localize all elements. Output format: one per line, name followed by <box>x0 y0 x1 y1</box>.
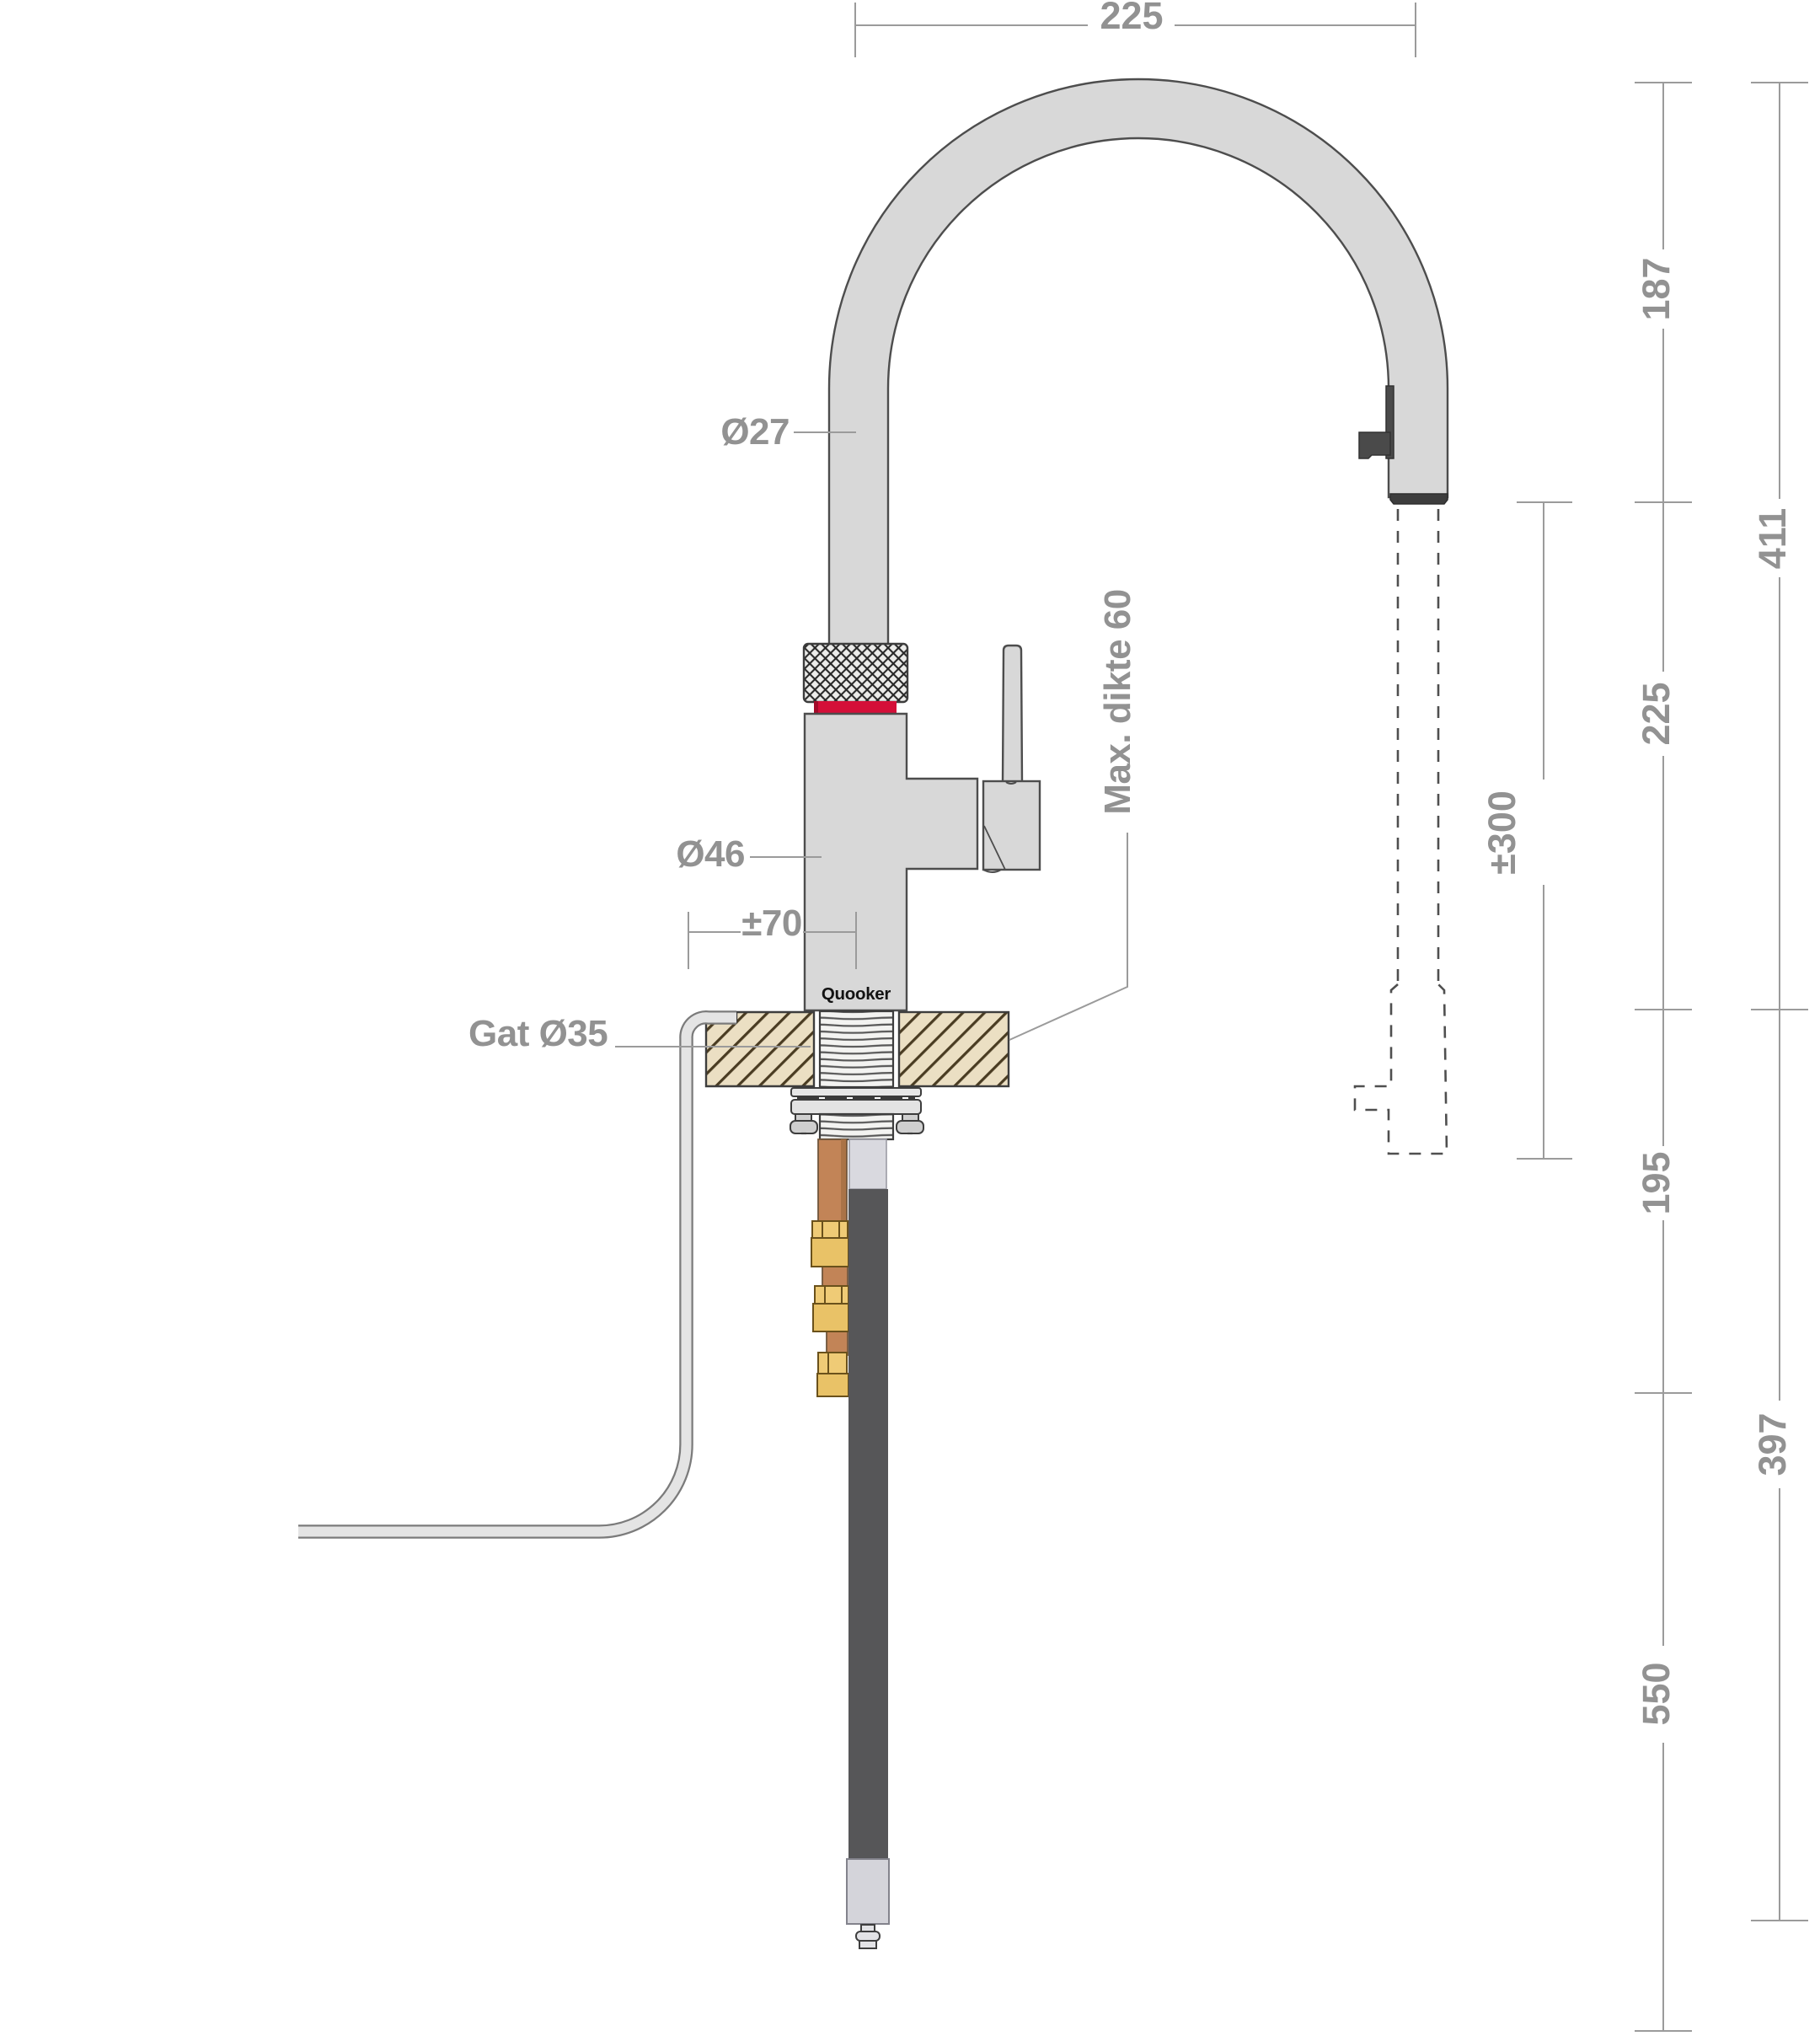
svg-text:Ø27: Ø27 <box>720 411 790 453</box>
svg-text:225: 225 <box>1100 0 1163 37</box>
svg-text:Ø46: Ø46 <box>676 833 745 875</box>
svg-text:±70: ±70 <box>741 903 802 944</box>
svg-text:225: 225 <box>1635 682 1678 745</box>
svg-text:Gat Ø35: Gat Ø35 <box>468 1013 608 1054</box>
svg-text:195: 195 <box>1635 1151 1678 1214</box>
svg-text:Max. dikte 60: Max. dikte 60 <box>1097 589 1138 814</box>
svg-text:411: 411 <box>1751 508 1794 570</box>
svg-text:397: 397 <box>1751 1412 1794 1476</box>
svg-text:550: 550 <box>1635 1662 1678 1725</box>
svg-text:±300: ±300 <box>1480 790 1523 875</box>
svg-text:187: 187 <box>1635 257 1678 320</box>
svg-text:Quooker: Quooker <box>822 984 891 1004</box>
